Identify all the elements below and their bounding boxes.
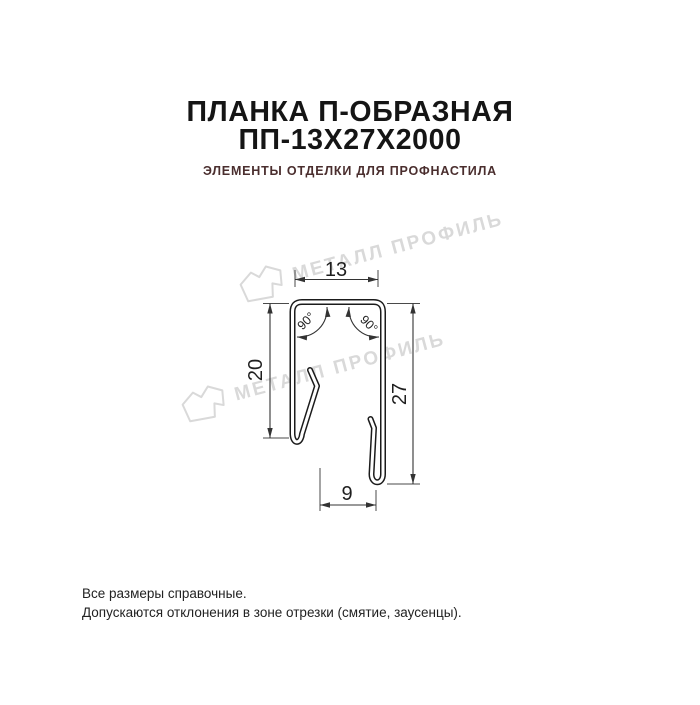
dimension-left-leg: 20 — [245, 304, 289, 439]
footer-note-line1: Все размеры справочные. — [82, 585, 462, 604]
footer-notes: Все размеры справочные. Допускаются откл… — [82, 585, 462, 622]
dim-bottom-gap-label: 9 — [341, 483, 352, 505]
angle-right: 90° — [349, 307, 381, 337]
dim-width-top-label: 13 — [325, 259, 347, 281]
angle-left: 90° — [295, 307, 328, 337]
angle-left-label: 90° — [295, 310, 318, 333]
dim-left-leg-label: 20 — [245, 359, 267, 381]
dimension-bottom-gap: 9 — [320, 468, 376, 511]
dim-right-leg-label: 27 — [389, 383, 411, 405]
footer-note-line2: Допускаются отклонения в зоне отрезки (с… — [82, 604, 462, 623]
dimension-width-top: 13 — [295, 259, 378, 287]
dimension-right-leg: 27 — [387, 304, 420, 485]
